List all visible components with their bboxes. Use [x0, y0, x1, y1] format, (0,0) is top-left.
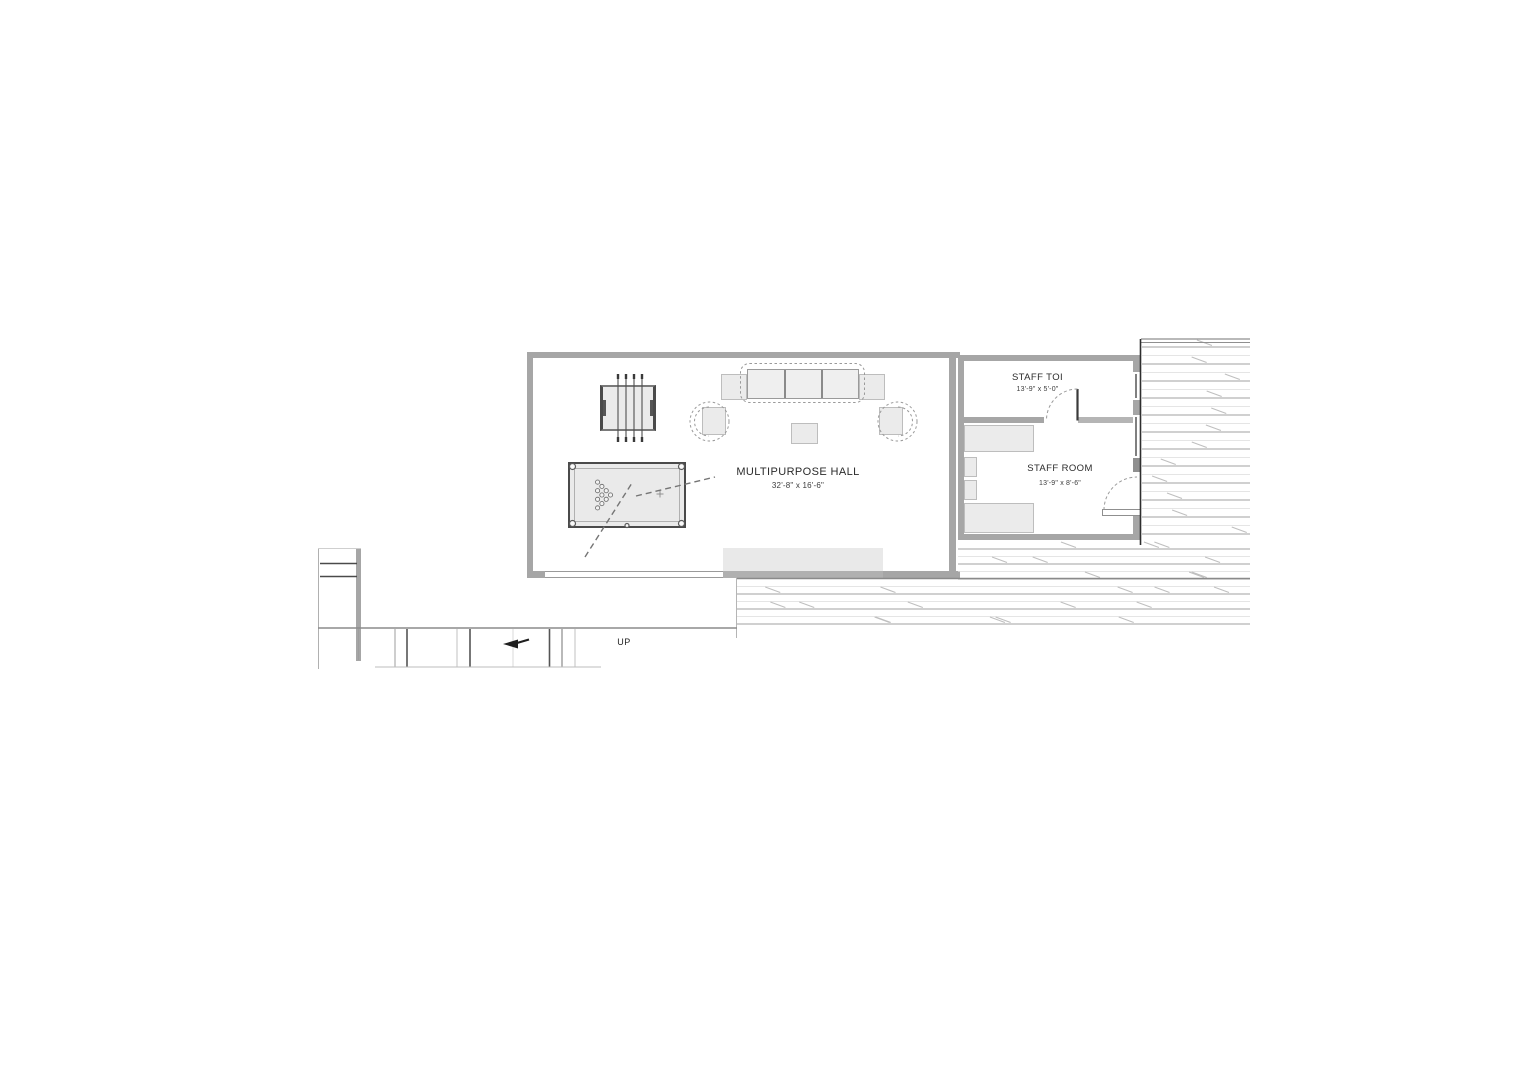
staff-room-door-leaf [1102, 509, 1141, 516]
stair-direction-arrow [503, 640, 529, 649]
staff-counter-top [964, 425, 1034, 452]
hall-window-wall [545, 571, 723, 578]
armchair-left-seat [702, 407, 726, 435]
hall-entrance-sill [723, 571, 883, 578]
armchair-right-seat [879, 407, 903, 435]
hall-wall-top [527, 352, 960, 358]
staff-toi-label: STAFF TOI [985, 373, 1090, 383]
hall-room-dimensions: 32'-8" x 16'-6" [698, 482, 898, 491]
floor-plan-canvas: MULTIPURPOSE HALL 32'-8" x 16'-6" STAFF … [0, 0, 1527, 1080]
foosball-goal-left [603, 400, 606, 416]
staff-wall-top [958, 355, 1140, 361]
hall-room-label: MULTIPURPOSE HALL [698, 466, 898, 478]
staff-wall-right-seg1 [1133, 361, 1140, 372]
staff-toi-dimensions: 13'-9" x 5'-0" [985, 386, 1090, 394]
staff-shelf-upper [964, 457, 977, 477]
staff-shelf-lower [964, 480, 977, 500]
sofa-seat-divider-1 [784, 370, 786, 398]
foosball-goal-right [650, 400, 653, 416]
staff-room-dimensions: 13'-9" x 8'-6" [1000, 480, 1120, 488]
staff-wall-bottom [958, 534, 1140, 540]
hall-wall-bottom-left [527, 571, 547, 578]
stair-up-label: UP [612, 638, 636, 648]
staff-room-window [1132, 415, 1141, 458]
side-table-left [721, 374, 747, 400]
staff-counter-bottom [964, 503, 1034, 533]
stair-wall [356, 548, 361, 661]
pool-table-cushion [574, 468, 680, 522]
staff-divider-stub [1078, 417, 1133, 423]
staff-wall-right-seg3 [1133, 458, 1140, 472]
hall-wall-right [949, 352, 956, 578]
staff-divider-wall [964, 417, 1044, 423]
pool-table [568, 462, 686, 528]
sofa [747, 369, 859, 399]
plan-linework [0, 0, 1527, 1080]
foosball-table [600, 385, 656, 431]
hall-entrance-opening [723, 548, 883, 571]
staff-room-label: STAFF ROOM [1000, 464, 1120, 474]
side-table-right [859, 374, 885, 400]
sofa-seat-divider-2 [821, 370, 823, 398]
staff-toi-window [1132, 372, 1141, 400]
coffee-table [791, 423, 818, 444]
hall-wall-bottom-right [883, 571, 960, 578]
staff-wall-right-seg4 [1133, 516, 1140, 534]
staff-wall-right-seg2 [1133, 400, 1140, 415]
hall-wall-left [527, 352, 533, 578]
